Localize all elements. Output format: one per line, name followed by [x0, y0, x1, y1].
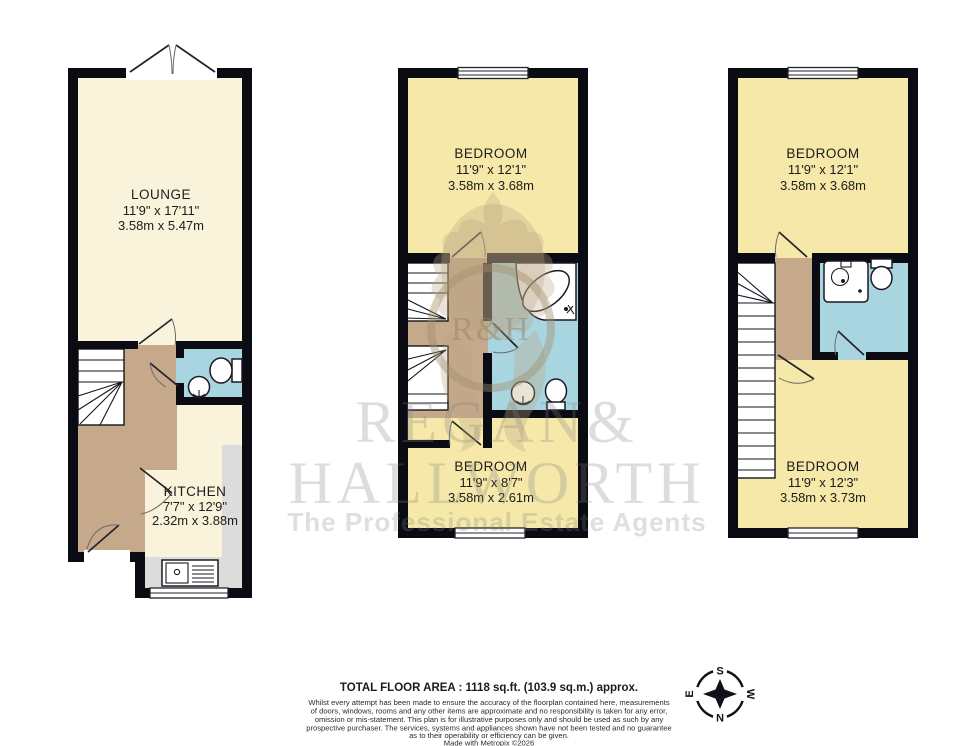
- room-dims-metric: 3.58m x 3.68m: [448, 178, 534, 193]
- compass-south: S: [716, 666, 723, 678]
- basin-fixture: [189, 377, 210, 398]
- room-dims-imperial: 11'9" x 12'3": [788, 475, 859, 490]
- compass-rose: S W N E: [684, 664, 756, 725]
- room-dims-imperial: 7'7" x 12'9": [163, 499, 227, 514]
- watermark-brand-top: REGAN&: [355, 389, 638, 455]
- wall: [866, 352, 913, 360]
- window: [458, 68, 528, 79]
- room-dims-imperial: 11'9" x 12'1": [456, 162, 527, 177]
- watermark-tagline: The Professional Estate Agents: [287, 507, 706, 537]
- room-dims-metric: 3.58m x 3.73m: [780, 490, 866, 505]
- stairs: [733, 263, 775, 478]
- winder-stairs: [78, 349, 124, 425]
- kitchen-sink: [162, 560, 218, 586]
- footer: TOTAL FLOOR AREA : 1118 sq.ft. (103.9 sq…: [306, 682, 671, 746]
- toilet-fixture: [871, 259, 892, 290]
- compass-star: [703, 679, 737, 709]
- room-dims-imperial: 11'9" x 17'11": [123, 203, 200, 218]
- toilet-fixture: [210, 358, 242, 383]
- total-floor-area: TOTAL FLOOR AREA : 1118 sq.ft. (103.9 sq…: [340, 682, 638, 694]
- window: [788, 68, 858, 79]
- room-dims-imperial: 11'9" x 12'1": [788, 162, 859, 177]
- wall: [812, 263, 820, 360]
- room-label: BEDROOM: [786, 146, 859, 161]
- room-dims-metric: 3.58m x 3.68m: [780, 178, 866, 193]
- second-floor-plan: BEDROOM 11'9" x 12'1" 3.58m x 3.68m BEDR…: [728, 68, 918, 539]
- wall: [176, 397, 252, 405]
- floorplan-page: LOUNGE 11'9" x 17'11" 3.58m x 5.47m KITC…: [0, 0, 980, 746]
- made-with-credit: Made with Metropix ©2026: [444, 739, 534, 746]
- wall: [68, 341, 138, 349]
- compass-east: E: [684, 690, 696, 697]
- landing: [775, 258, 812, 360]
- room-dims-metric: 2.32m x 3.88m: [152, 513, 238, 528]
- window: [788, 528, 858, 538]
- room-label: KITCHEN: [164, 484, 227, 499]
- front-door-opening: [84, 550, 130, 564]
- shower-fixture: [824, 261, 868, 302]
- room-dims-metric: 3.58m x 5.47m: [118, 218, 204, 233]
- room-label: LOUNGE: [131, 187, 191, 202]
- crest-monogram: R&H: [451, 311, 531, 348]
- window: [150, 588, 228, 598]
- wall: [176, 341, 252, 349]
- floorplan-svg: LOUNGE 11'9" x 17'11" 3.58m x 5.47m KITC…: [0, 0, 980, 746]
- room-label: BEDROOM: [786, 459, 859, 474]
- room-label: BEDROOM: [454, 146, 527, 161]
- compass-north: N: [716, 711, 724, 723]
- compass-west: W: [744, 689, 756, 700]
- ground-floor-plan: LOUNGE 11'9" x 17'11" 3.58m x 5.47m KITC…: [68, 45, 252, 598]
- wall: [812, 352, 838, 360]
- wall: [176, 349, 184, 358]
